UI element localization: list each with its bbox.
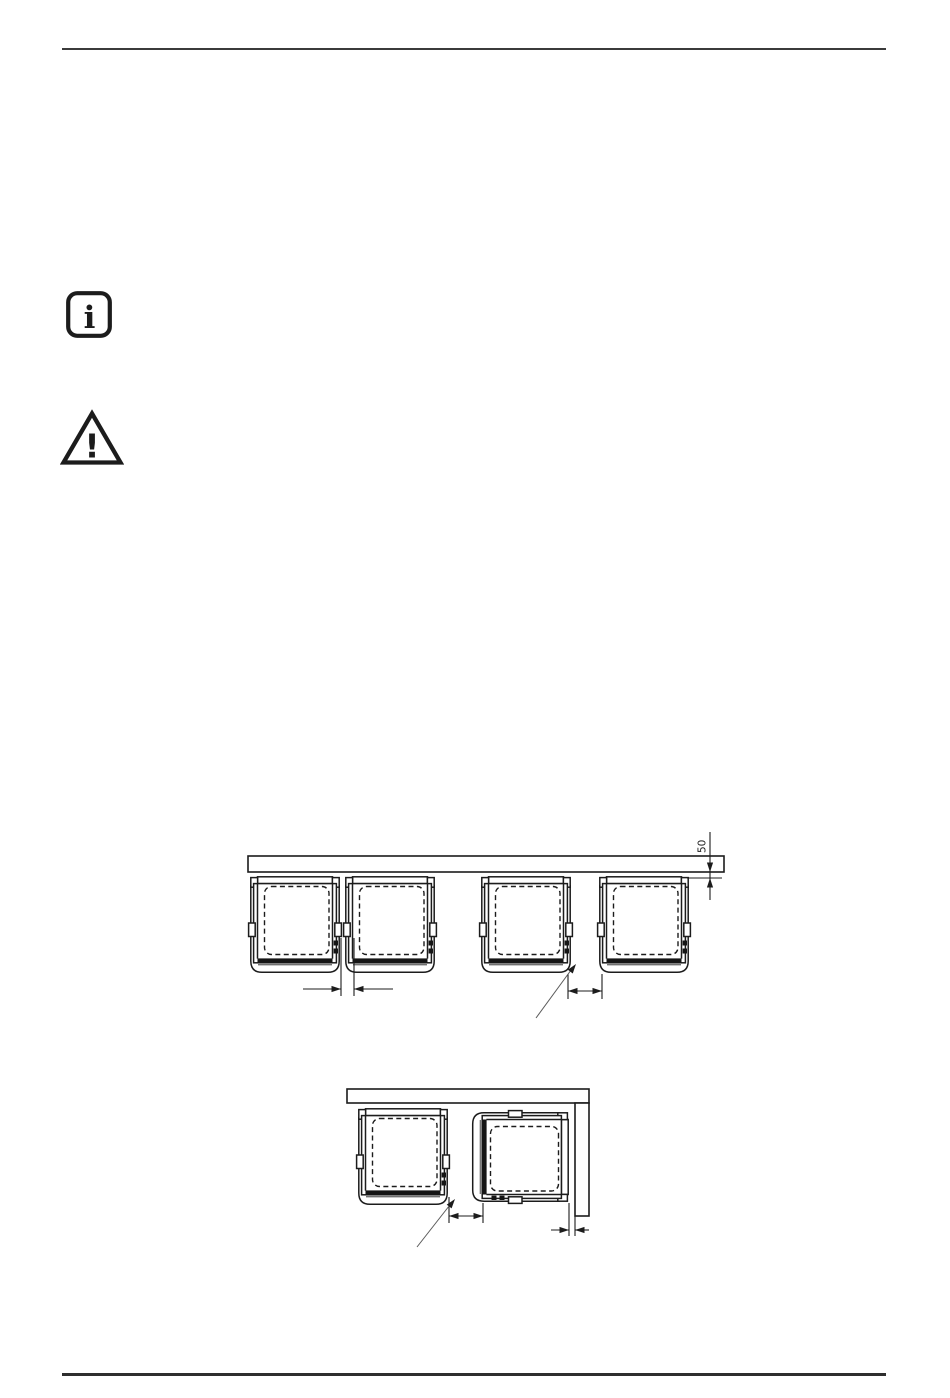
info-icon: i [66,291,112,338]
header-rule [62,48,886,50]
warning-icon-glyph: ! [84,427,99,466]
dimension-label: 50 [697,840,709,853]
appliance-unit [357,1109,450,1205]
footer-rule [62,1373,886,1376]
dimension-right-pair-gap [568,974,602,999]
info-icon-glyph: i [84,300,96,336]
wall-top-view [248,856,724,872]
appliance-unit [480,877,573,973]
wall-top-view [347,1089,589,1103]
appliance-unit [598,877,691,973]
wall-side-view [575,1103,589,1216]
appliance-unit [344,877,437,973]
appliance-unit-rotated [473,1111,569,1204]
figure-row-installation: 50 [230,815,750,1025]
manual-page: i ! [0,0,950,1398]
appliance-unit [249,877,342,973]
warning-icon: ! [60,409,124,467]
figure-corner-installation [340,1085,600,1260]
